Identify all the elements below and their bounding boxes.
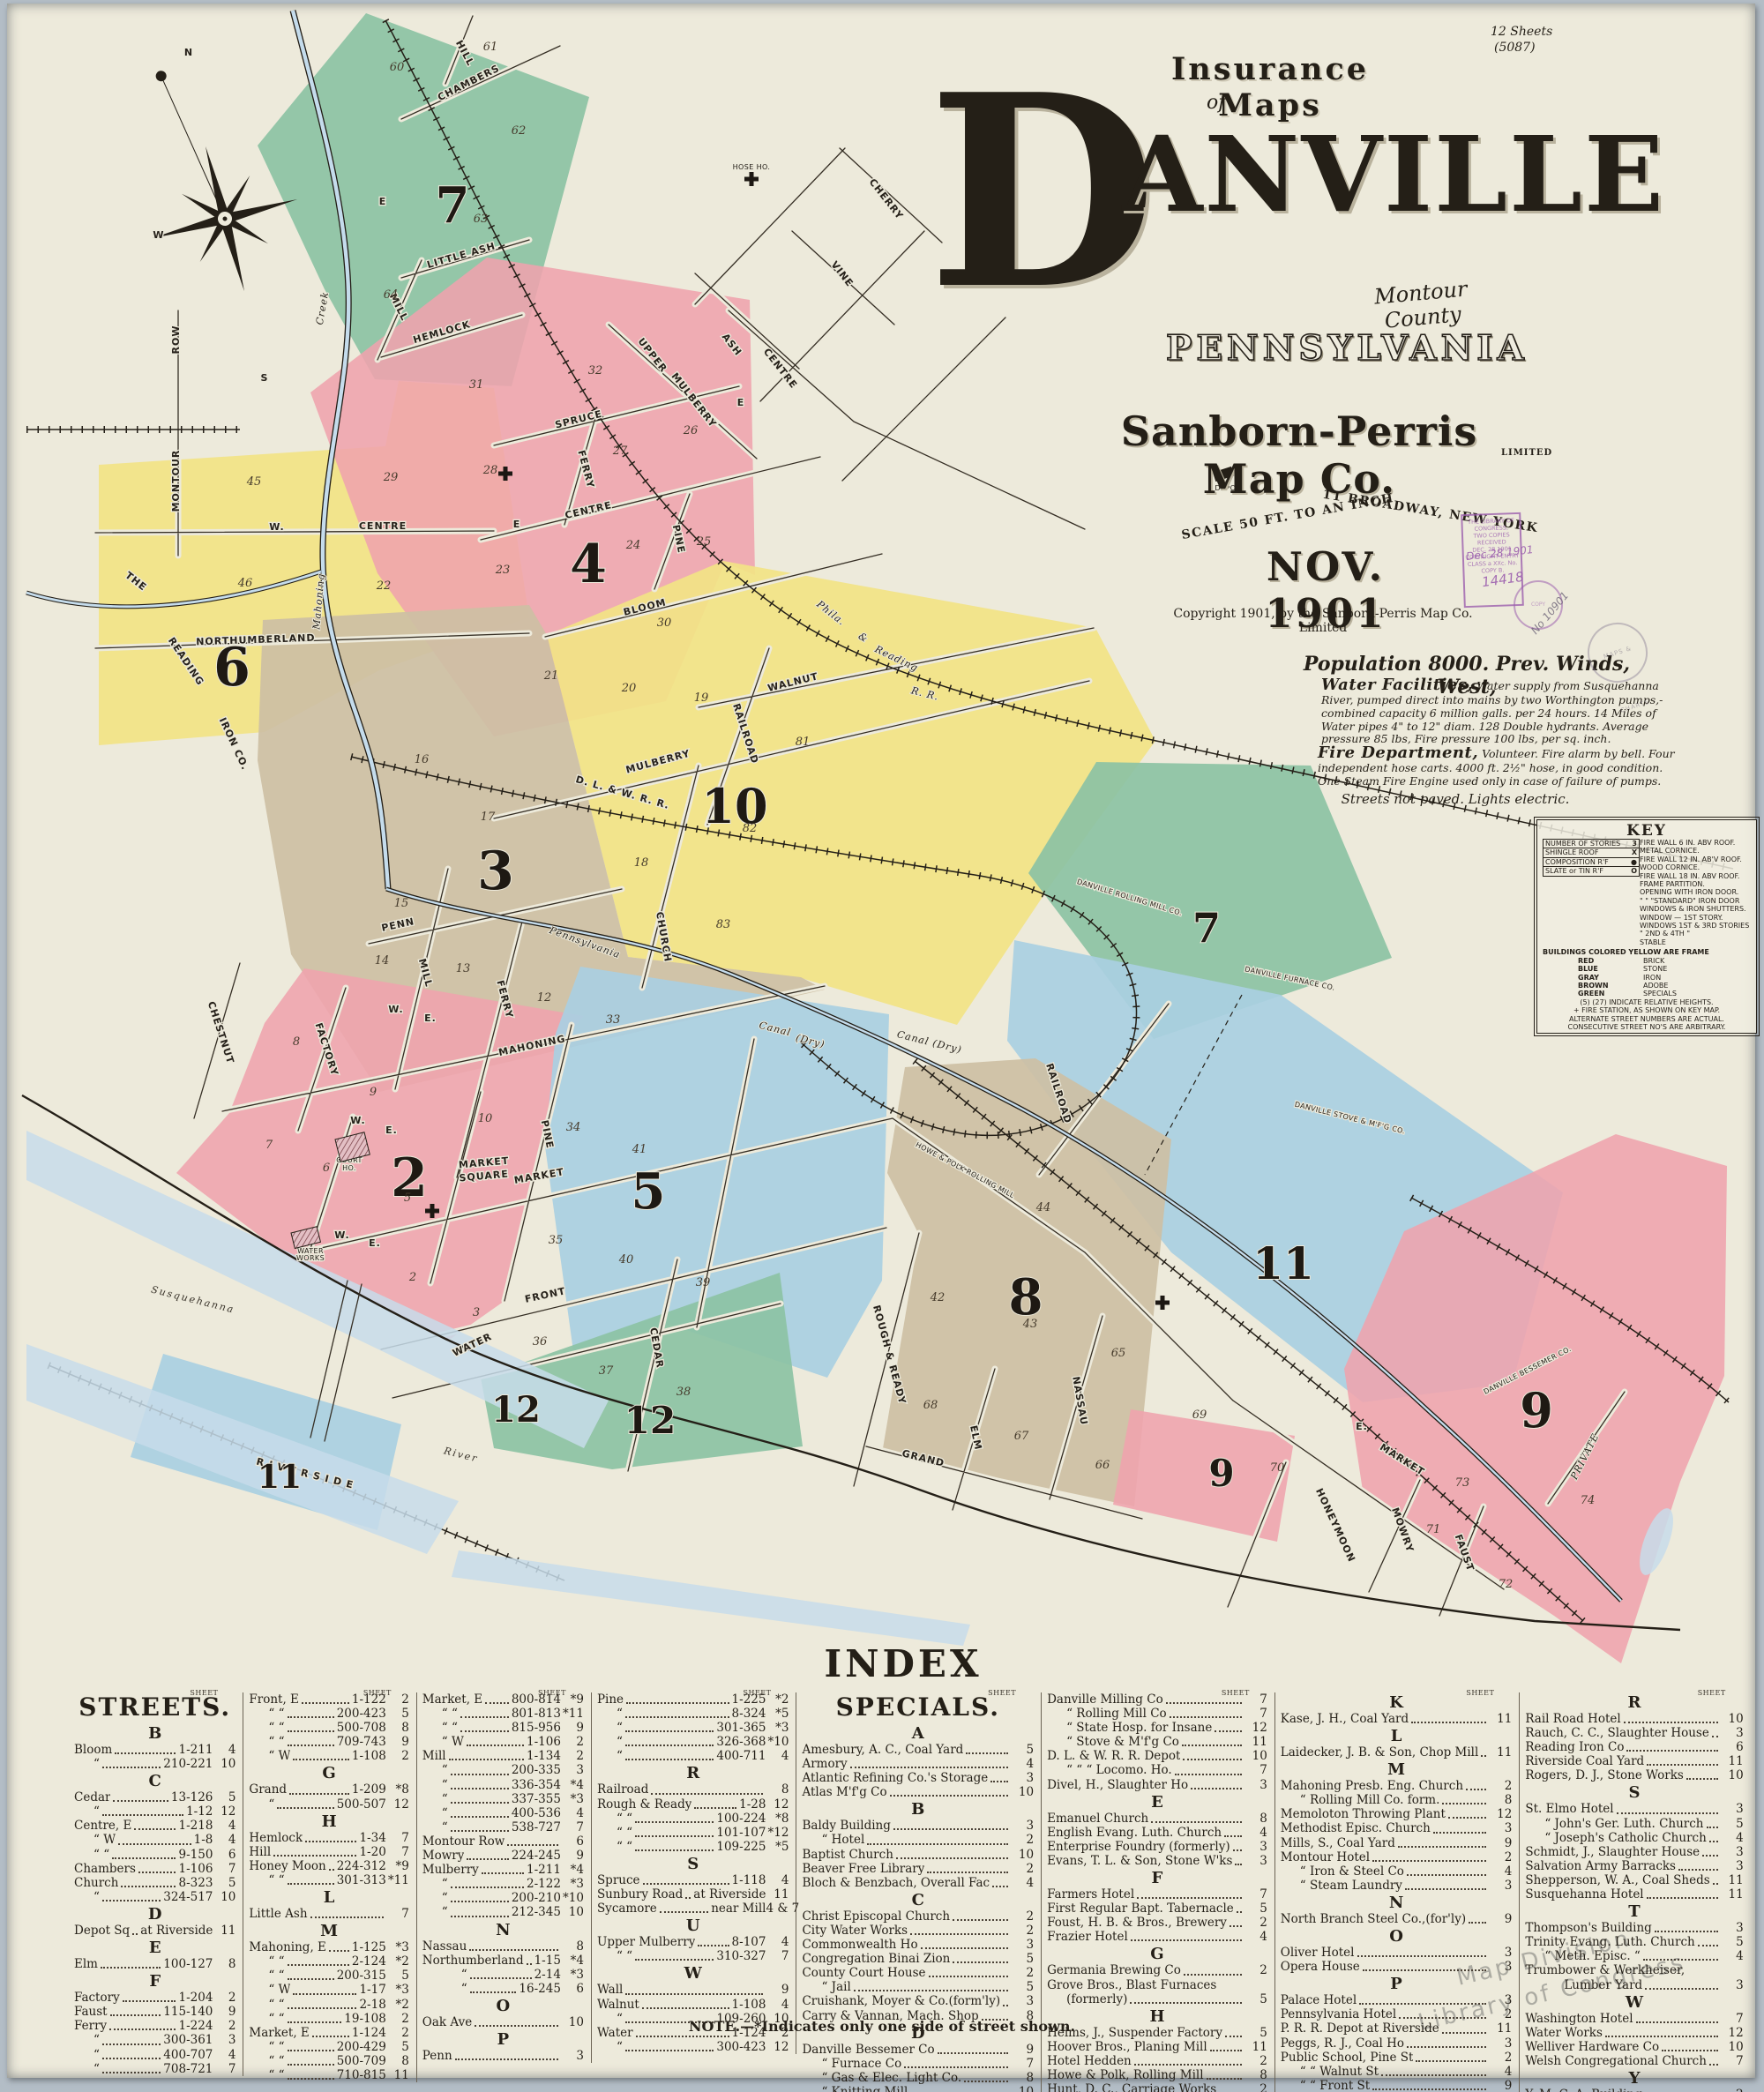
index-entry-range: 8-107 [732, 1935, 766, 1949]
key-attr-label: NUMBER OF STORIES [1545, 840, 1620, 848]
index-entry-sheet: 9 [766, 1983, 789, 1997]
index-entry-sheet: 4 [213, 1833, 235, 1847]
map-label-w: W. [269, 521, 284, 533]
index-entry-name: Schmidt, J., Slaughter House [1525, 1845, 1700, 1859]
index-entry-sheet: 7 [386, 1907, 409, 1921]
index-letter-K: K [1281, 1694, 1513, 1712]
key-title: KEY [1543, 823, 1751, 839]
key-line: " 2ND & 4TH " [1640, 930, 1749, 938]
index-entry: Honey Moon224-312*9 [249, 1859, 408, 1873]
index-entry-sheet: 11 [1245, 1735, 1267, 1749]
index-entry-name: Baldy Building [802, 1819, 890, 1833]
index-entry-range: 2-122 [527, 1877, 561, 1891]
index-entry-range: 8-324 [732, 1707, 766, 1721]
index-entry-sheet: 2 [1721, 2088, 1744, 2092]
index-entry-name: Germania Brewing Co [1047, 1963, 1181, 1977]
fire-department-note: Fire Department, Volunteer. Fire alarm b… [1318, 743, 1681, 788]
block-number-30: 30 [657, 616, 672, 630]
index-entry: “ Knitting Mill10 [802, 2085, 1034, 2092]
block-number-41: 41 [632, 1143, 647, 1156]
leader-dots [305, 1841, 356, 1842]
leader-dots [854, 1990, 1008, 1991]
index-entry-name: “ W [74, 1833, 116, 1847]
leader-dots [1626, 1750, 1717, 1752]
leader-dots [1183, 1759, 1241, 1760]
index-entry-name: “ [422, 1778, 448, 1792]
index-entry-sheet: 7 [213, 2062, 235, 2076]
leader-dots [134, 1828, 176, 1830]
index-entry-sheet: 3 [1489, 2036, 1512, 2051]
map-label-river: River [442, 1445, 480, 1464]
index-entry-sheet: 5 [386, 2040, 409, 2054]
index-entry-range: 200-210 [512, 1891, 561, 1905]
leader-dots [451, 1816, 509, 1818]
key-attr-label: SLATE or TIN R'F [1545, 867, 1603, 875]
index-entry: Palace Hotel3 [1281, 1993, 1513, 2007]
leader-dots [293, 1759, 348, 1760]
block-number-35: 35 [549, 1234, 564, 1247]
leader-dots [288, 2064, 334, 2066]
index-entry-sheet: 5 [386, 1969, 409, 1983]
index-entry-sheet: *11 [561, 1707, 584, 1721]
index-entry-range: 2-124 [352, 1954, 386, 1969]
leader-dots [102, 2072, 161, 2073]
index-entry-sheet: 2 [1011, 1909, 1034, 1924]
leader-dots [1134, 2064, 1242, 2066]
index-entry: Laidecker, J. B. & Son, Chop Mill11 [1281, 1745, 1513, 1760]
leader-dots [635, 1849, 714, 1851]
index-entry-sheet: 5 [386, 1707, 409, 1721]
index-entry-name: “ Joseph's Catholic Church [1525, 1831, 1706, 1845]
index-entry: Walnut1-1084 [597, 1998, 789, 2012]
index-entry-range: 500-507 [337, 1797, 386, 1812]
index-entry-name: Hill [249, 1845, 271, 1859]
index-entry-name: Chambers [74, 1862, 136, 1876]
block-number-38: 38 [676, 1386, 691, 1399]
leader-dots [1469, 1922, 1486, 1924]
index-column: SHEETPine1-225*2“8-324*5“301-365*3“326-3… [592, 1692, 797, 2054]
leader-dots [1224, 1835, 1242, 1837]
leader-dots [1210, 2050, 1242, 2051]
index-entry-sheet: 4 [561, 1806, 584, 1820]
index-entry: “2-14*3 [422, 1968, 584, 1982]
block-number-15: 15 [394, 897, 409, 910]
river-band-3 [452, 1550, 970, 1646]
leader-dots [312, 2036, 349, 2037]
leader-dots [1407, 1874, 1486, 1876]
index-entry: Y. M. C. A. Building2 [1525, 2088, 1743, 2092]
index-entry-sheet: 9 [1489, 1836, 1512, 1850]
index-entry-name: Laidecker, J. B. & Son, Chop Mill [1281, 1745, 1479, 1760]
index-entry-sheet: 4 [1011, 1757, 1034, 1771]
index-entry-name: “ [249, 1797, 274, 1812]
index-entry-range: 400-707 [163, 2048, 213, 2062]
map-label-e: E [513, 519, 521, 530]
leader-dots [625, 1993, 763, 1995]
index-entry-range: 1-106 [527, 1735, 561, 1749]
district-number-7: 7 [1192, 904, 1221, 952]
index-entry-sheet: 2 [1489, 1850, 1512, 1864]
index-entry-name: Grand [249, 1782, 287, 1797]
block-number-65: 65 [1111, 1347, 1126, 1360]
index-entry-range: 1-209 [352, 1782, 386, 1797]
index-entry-name: “ [422, 1820, 448, 1834]
leader-dots [635, 1835, 714, 1837]
index-entry-name: “ “ [249, 1969, 284, 1983]
leader-dots [867, 1843, 1008, 1845]
leader-dots [451, 1802, 509, 1804]
index-entry-sheet: *12 [766, 1826, 789, 1840]
title-publisher-limited: LIMITED [1501, 448, 1552, 458]
index-entry-range: 1-28 [739, 1797, 766, 1812]
index-entry: “ W1-84 [74, 1833, 235, 1847]
leader-dots [1686, 1778, 1718, 1780]
index-entry-sheet: *10 [561, 1891, 584, 1905]
index-entry: Kase, J. H., Coal Yard11 [1281, 1712, 1513, 1726]
index-entry-name: “ “ [249, 2054, 284, 2068]
index-entry-sheet: 7 [1011, 2057, 1034, 2071]
key-line: FRAME PARTITION. [1640, 880, 1749, 888]
leader-dots [467, 1858, 508, 1860]
index-entry-name: “ Hotel [802, 1833, 864, 1847]
leader-dots [101, 1967, 161, 1969]
index-entry-sheet: 10 [1011, 1785, 1034, 1799]
index-entry-range: 224-312 [337, 1859, 386, 1873]
index-entry-name: “ [74, 2048, 100, 2062]
leader-dots [455, 2058, 558, 2060]
leader-dots [1175, 1774, 1242, 1775]
map-label-e: E [737, 397, 745, 408]
index-letter-N: N [422, 1922, 584, 1939]
index-entry: Hunt, D. C., Carriage Works2 [1047, 2082, 1267, 2092]
leader-dots [921, 1947, 1009, 1949]
leader-dots [102, 1767, 161, 1768]
index-entry-sheet: 9 [213, 2005, 235, 2019]
block-number-61: 61 [483, 41, 498, 54]
leader-dots [451, 1830, 509, 1832]
index-entry-name: Kase, J. H., Coal Yard [1281, 1712, 1409, 1726]
index-entry-name: Mills, S., Coal Yard [1281, 1836, 1395, 1850]
index-entry-name: Lumber Yard [1525, 1978, 1642, 1992]
key-attr-symbol: X [1632, 848, 1637, 856]
index-entry-name: “ [422, 1763, 448, 1777]
fire-station-cross [1155, 1296, 1170, 1310]
key-color-material: ADOBE [1643, 982, 1668, 990]
index-entry: Mahoning Presb. Eng. Church2 [1281, 1779, 1513, 1793]
index-entry: “326-368*10 [597, 1735, 789, 1749]
title-publisher: Sanborn-Perris Map Co. [1092, 407, 1506, 503]
index-entry: Oliver Hotel3 [1281, 1946, 1513, 1960]
index-footnote: NOTE.—*Indicates only one side of street… [0, 2018, 1764, 2035]
leader-dots [635, 1959, 714, 1961]
leader-dots [1466, 1789, 1486, 1790]
key-note: (5) (27) INDICATE RELATIVE HEIGHTS. [1543, 998, 1751, 1006]
index-entry-name: Bloom [74, 1743, 112, 1757]
index-entry-sheet: 3 [1721, 1978, 1744, 1992]
key-notes: (5) (27) INDICATE RELATIVE HEIGHTS.+ FIR… [1543, 998, 1751, 1032]
block-number-21: 21 [543, 669, 559, 683]
key-color-row: GRAYIRON [1543, 974, 1751, 982]
leader-dots [1357, 1955, 1487, 1957]
index-entry: Schmidt, J., Slaughter House3 [1525, 1845, 1743, 1859]
index-entry-range: 1-8 [194, 1833, 213, 1847]
leader-dots [1182, 1745, 1242, 1746]
index-entry: “300-42312 [597, 2040, 789, 2054]
index-entry-range: 301-313 [337, 1873, 386, 1887]
index-entry: Little Ash7 [249, 1907, 408, 1921]
index-entry-sheet: 4 [213, 1743, 235, 1757]
index-entry-sheet: 12 [1245, 1721, 1267, 1735]
map-label-cherry: CHERRY [867, 176, 906, 221]
leader-dots [890, 1795, 1008, 1797]
leader-dots [507, 1844, 558, 1846]
index-entry: “ Gas & Elec. Light Co.8 [802, 2071, 1034, 2085]
index-entry: Rail Road Hotel10 [1525, 1712, 1743, 1726]
index-entry: Susquehanna Hotel11 [1525, 1887, 1743, 1901]
index-entry-sheet: 3 [1245, 1854, 1267, 1868]
index-entry-name: “ “ [422, 1707, 458, 1721]
leader-dots [470, 1991, 517, 1993]
block-number-7: 7 [265, 1139, 273, 1152]
leader-dots [966, 1752, 1008, 1754]
index-entry-name: “ “ [249, 1721, 284, 1735]
leader-dots [460, 1716, 509, 1718]
index-entry-sheet: 4 [766, 1998, 789, 2012]
map-label-front: FRONT [524, 1285, 567, 1304]
index-entry-sheet: *3 [766, 1721, 789, 1735]
index-entry-range: 1-20 [359, 1845, 385, 1859]
district-number-3: 3 [477, 841, 514, 902]
map-key-legend: KEY NUMBER OF STORIES3SHINGLE ROOFXCOMPO… [1536, 819, 1757, 1034]
block-number-64: 64 [384, 288, 399, 302]
key-color-row: BLUESTONE [1543, 965, 1751, 973]
index-entry-sheet: 5 [1011, 1743, 1034, 1757]
index-entry-sheet: 12 [1489, 1807, 1512, 1821]
block-number-8: 8 [293, 1035, 300, 1049]
index-entry: “ W1-1082 [249, 1749, 408, 1763]
index-letter-Y: Y [1525, 2070, 1743, 2088]
block-number-34: 34 [566, 1121, 581, 1134]
index-entry-sheet: 3 [1489, 1960, 1512, 1974]
index-entry-sheet: *3 [561, 1968, 584, 1982]
index-entry-sheet: 3 [1721, 1921, 1744, 1935]
index-entry-name: Commonwealth Ho [802, 1938, 917, 1952]
index-entry-sheet: *5 [766, 1707, 789, 1721]
index-entry-name: Mowry [422, 1849, 465, 1863]
index-entry-sheet: 2 [1489, 1779, 1512, 1793]
index-entry: Enterprise Foundry (formerly)3 [1047, 1840, 1267, 1854]
index-entry-name: Welsh Congregational Church [1525, 2054, 1707, 2068]
block-number-16: 16 [415, 753, 430, 766]
index-entry: Riverside Coal Yard11 [1525, 1754, 1743, 1768]
leader-dots [1130, 2002, 1241, 2004]
plate-number: (5087) [1494, 41, 1536, 55]
key-color-name: GRAY [1543, 974, 1643, 982]
leader-dots [110, 2014, 161, 2016]
map-label-susquehanna: Susquehanna [150, 1284, 236, 1316]
index-entry-sheet: *2 [386, 1954, 409, 1969]
index-entry: Commonwealth Ho3 [802, 1938, 1034, 1952]
key-line: WINDOWS & IRON SHUTTERS. [1640, 905, 1749, 913]
index-entry: “ Rolling Mill Co7 [1047, 1707, 1267, 1721]
index-entry: Amesbury, A. C., Coal Yard5 [802, 1743, 1034, 1757]
index-entry-range: 301-365 [716, 1721, 766, 1735]
block-number-22: 22 [376, 579, 392, 593]
leader-dots [293, 1993, 356, 1995]
leader-dots [288, 1716, 334, 1718]
index-entry: Mahoning, E1-125*3 [249, 1940, 408, 1954]
index-letter-W: W [1525, 1994, 1743, 2012]
index-entry-sheet: 11 [1245, 2040, 1267, 2054]
index-entry-name: Market, E [422, 1692, 482, 1707]
index-entry-sheet: 10 [1011, 1848, 1034, 1862]
index-entry-name: Centre, E [74, 1819, 131, 1833]
block-number-71: 71 [1426, 1523, 1441, 1536]
index-entry-sheet: 8 [386, 1721, 409, 1735]
block-number-28: 28 [482, 464, 498, 477]
index-entry-sheet: 4 [766, 1749, 789, 1763]
index-entry-sheet: 11 [1721, 1873, 1744, 1887]
key-symbol-lines: FIRE WALL 6 IN. ABV ROOF.METAL CORNICE.F… [1640, 839, 1749, 946]
index-entry-name: Factory [74, 1991, 120, 2005]
map-label-s: S [261, 372, 269, 384]
index-letter-L: L [1281, 1728, 1513, 1745]
index-entry-sheet: 8 [766, 1782, 789, 1797]
index-entry-sheet: 11 [766, 1887, 789, 1901]
index-entry-sheet: 4 [1245, 1826, 1267, 1840]
index-entry-range: 538-727 [512, 1820, 561, 1834]
block-number-36: 36 [533, 1335, 548, 1349]
leader-dots [964, 2081, 1008, 2082]
index-letter-E: E [1047, 1794, 1267, 1812]
block-number-42: 42 [930, 1291, 946, 1304]
index-entry: Hill1-207 [249, 1845, 408, 1859]
index-entry-name: North Branch Steel Co.,(for'ly) [1281, 1912, 1466, 1926]
index-entry-sheet: 10 [561, 1905, 584, 1919]
index-entry-name: Enterprise Foundry (formerly) [1047, 1840, 1230, 1854]
leader-dots [685, 1897, 691, 1899]
leader-dots [651, 1793, 763, 1795]
water-facilities-title: Water Facilities, [1321, 676, 1473, 694]
leader-dots [138, 1872, 176, 1873]
index-entry: (formerly)5 [1047, 1992, 1267, 2006]
index-entry-name: Cruishank, Moyer & Co.(form'ly) [802, 1994, 1000, 2008]
index-entry-sheet: 8 [1245, 2068, 1267, 2082]
sheet-column-label: SHEET [743, 1689, 771, 1697]
index-entry-sheet: *3 [561, 1792, 584, 1806]
index-entry-name: “ “ [597, 1840, 632, 1854]
leader-dots [102, 2043, 161, 2045]
index-entry-name: Reading Iron Co [1525, 1740, 1624, 1754]
index-entry: Trinity Evang. Luth. Church5 [1525, 1935, 1743, 1949]
index-entry-range: 709-743 [337, 1735, 386, 1749]
index-entry-name: “ Furnace Co [802, 2057, 901, 2071]
index-entry-sheet: 8 [386, 2054, 409, 2068]
index-entry-sheet: 2 [1011, 1833, 1034, 1847]
index-entry-sheet: 12 [766, 2040, 789, 2054]
index-entry: “ “109-225*5 [597, 1840, 789, 1854]
fire-department-title: Fire Department, [1318, 743, 1478, 762]
index-entry: Rauch, C. C., Slaughter House3 [1525, 1726, 1743, 1740]
index-entry-name: Rough & Ready [597, 1797, 691, 1812]
leader-dots [277, 1807, 333, 1809]
leader-dots [288, 2007, 357, 2009]
leader-dots [288, 1745, 334, 1746]
leader-dots [1207, 2078, 1242, 2080]
index-entry: Faust115-1409 [74, 2005, 235, 2019]
index-entry-name: “ Stove & M'f'g Co [1047, 1735, 1179, 1749]
index-letter-F: F [1047, 1870, 1267, 1887]
key-attribute-table: NUMBER OF STORIES3SHINGLE ROOFXCOMPOSITI… [1543, 839, 1636, 946]
index-entry-sheet: 10 [1721, 2040, 1744, 2054]
index-entry-name: Rail Road Hotel [1525, 1712, 1620, 1726]
index-entry-name: “ “ [597, 1826, 632, 1840]
index-entry-name: Salvation Army Barracks [1525, 1859, 1676, 1873]
map-label-hose-ho: HOSE HO. [733, 163, 771, 171]
index-entry-sheet: 3 [1721, 1726, 1744, 1740]
index-entry-name: Honey Moon [249, 1859, 325, 1873]
index-entry: Methodist Episc. Church3 [1281, 1821, 1513, 1835]
leader-dots [1407, 2046, 1486, 2048]
index-entry-name: Armory [802, 1757, 847, 1771]
leader-dots [1405, 1888, 1486, 1890]
index-letter-O: O [422, 1998, 584, 2015]
index-entry: First Regular Bapt. Tabernacle5 [1047, 1901, 1267, 1916]
index-entry-range: 815-956 [512, 1721, 561, 1735]
district-number-12: 12 [624, 1399, 676, 1442]
index-entry-name: “ [74, 1804, 100, 1819]
leader-dots [642, 2007, 729, 2009]
index-entry-name: Sycamore [597, 1901, 657, 1916]
block-number-12: 12 [537, 991, 552, 1005]
leader-dots [102, 1814, 183, 1816]
index-entry-range: 210-221 [163, 1757, 213, 1771]
index-entry-sheet: 3 [561, 1763, 584, 1777]
index-entry: Rough & Ready1-2812 [597, 1797, 789, 1812]
key-attr-row: COMPOSITION R'F● [1543, 857, 1640, 866]
index-entry: “ “ Front St9 [1281, 2079, 1513, 2092]
index-entry-name: Welliver Hardware Co [1525, 2040, 1659, 2054]
index-entry-name: Susquehanna Hotel [1525, 1887, 1643, 1901]
leader-dots [288, 1978, 334, 1980]
block-number-70: 70 [1270, 1461, 1285, 1475]
index-entry-name: City Water Works [802, 1924, 908, 1938]
index-entry-sheet: *3 [386, 1983, 409, 1997]
index-letter-M: M [1281, 1761, 1513, 1779]
index-entry: “538-7277 [422, 1820, 584, 1834]
block-number-27: 27 [612, 445, 628, 458]
index-letter-M: M [249, 1923, 408, 1940]
compass-ornament [154, 70, 168, 83]
index-entry: Frazier Hotel4 [1047, 1930, 1267, 1944]
index-entry: Atlantic Refining Co.'s Storage3 [802, 1771, 1034, 1785]
index-entry-sheet: 4 [766, 1935, 789, 1949]
district-number-11: 11 [258, 1459, 302, 1496]
index-entry-range: 109-225 [716, 1840, 766, 1854]
index-entry-name: Front, E [249, 1692, 299, 1707]
block-number-25: 25 [696, 535, 712, 549]
leader-dots [1166, 1702, 1242, 1704]
index-entry-sheet: 11 [213, 1924, 235, 1938]
leader-dots [485, 1702, 509, 1704]
index-entry-sheet: 6 [561, 1834, 584, 1849]
map-label-e: E. [424, 1012, 437, 1024]
index-entry: North Branch Steel Co.,(for'ly)9 [1281, 1912, 1513, 1926]
index-entry: “324-51710 [74, 1890, 235, 1904]
leader-dots [1372, 2088, 1486, 2090]
leader-dots [121, 1886, 176, 1887]
index-entry: “8-324*5 [597, 1707, 789, 1721]
